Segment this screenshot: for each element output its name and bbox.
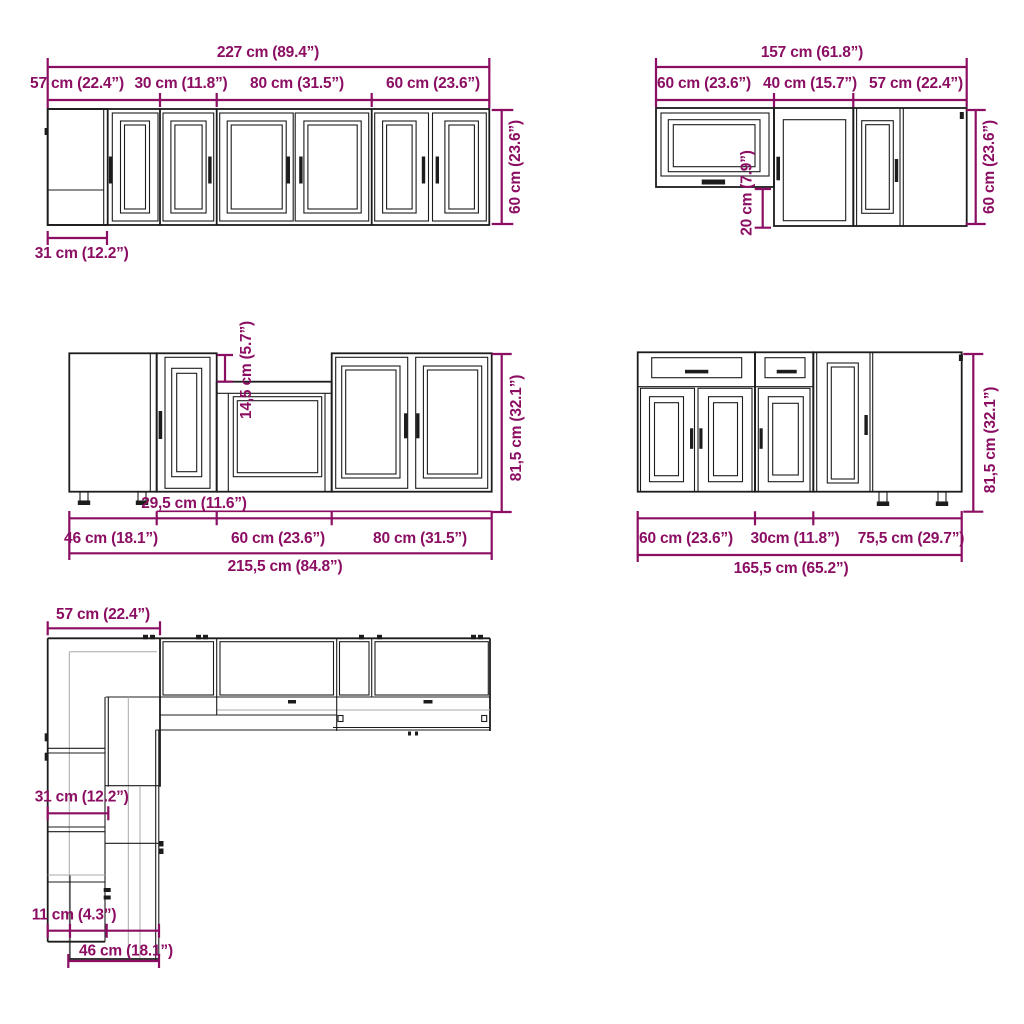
base-row-total-width-label: 215,5 cm (84.8”) — [228, 558, 343, 575]
wall-row-height-label: 60 cm (23.6”) — [507, 120, 524, 214]
wall-row-segment-label-80: 80 cm (31.5”) — [250, 75, 344, 92]
base-corner-segment-label-75: 75,5 cm (29.7”) — [858, 530, 964, 547]
wall-cabinet-row-drawing — [45, 109, 490, 225]
wall-corner-segment-label-40: 40 cm (15.7”) — [763, 75, 857, 92]
floor-plan-offset-label: 11 cm (4.3”) — [32, 907, 117, 924]
base-corner-total-width-label: 165,5 cm (65.2”) — [734, 560, 849, 577]
wall-cabinet-row-diagram: 227 cm (89.4”) 57 cm (22.4”) 30 cm (11.8… — [30, 44, 524, 262]
wall-row-total-width-label: 227 cm (89.4”) — [217, 44, 319, 61]
wall-corner-segment-label-57: 57 cm (22.4”) — [869, 75, 963, 92]
base-row-segment-label-80: 80 cm (31.5”) — [373, 530, 467, 547]
corner-base-cabinet-drawing — [638, 352, 963, 506]
floor-plan-diagram: 57 cm (22.4”) 31 cm (12.2”) 11 cm (4.3”)… — [32, 606, 490, 968]
kitchen-dimension-sheet: 227 cm (89.4”) 57 cm (22.4”) 30 cm (11.8… — [0, 0, 1024, 1024]
base-row-height-label: 81,5 cm (32.1”) — [508, 375, 525, 481]
floor-plan-top-width-label: 57 cm (22.4”) — [56, 606, 150, 623]
wall-corner-offset-label: 20 cm (7.9”) — [739, 150, 756, 236]
corner-wall-cabinet-diagram: 157 cm (61.8”) 60 cm (23.6”) 40 cm (15.7… — [656, 44, 998, 236]
wall-corner-total-width-label: 157 cm (61.8”) — [761, 44, 863, 61]
base-corner-height-label: 81,5 cm (32.1”) — [982, 387, 999, 493]
base-corner-segment-label-60: 60 cm (23.6”) — [639, 530, 733, 547]
base-row-sink-offset-label: 14,5 cm (5.7”) — [238, 321, 255, 419]
floor-plan-base-depth-label: 46 cm (18.1”) — [79, 943, 173, 960]
wall-corner-height-label: 60 cm (23.6”) — [981, 120, 998, 214]
dimension-drawing-canvas: 227 cm (89.4”) 57 cm (22.4”) 30 cm (11.8… — [0, 0, 1024, 1024]
base-row-segment-label-46: 46 cm (18.1”) — [64, 530, 158, 547]
wall-row-segment-label-30: 30 cm (11.8”) — [134, 75, 227, 92]
base-row-segment-label-60: 60 cm (23.6”) — [231, 530, 325, 547]
base-cabinet-row-diagram: 14,5 cm (5.7”) 81,5 cm (32.1”) 29,5 cm (… — [64, 321, 525, 575]
base-cabinet-row-drawing — [69, 353, 491, 505]
wall-row-segment-label-57: 57 cm (22.4”) — [30, 75, 124, 92]
base-corner-segment-label-30: 30cm (11.8”) — [751, 530, 840, 547]
wall-row-corner-depth-label: 31 cm (12.2”) — [35, 245, 129, 262]
wall-corner-segment-label-60: 60 cm (23.6”) — [657, 75, 751, 92]
corner-base-cabinet-diagram: 81,5 cm (32.1”) 60 cm (23.6”) 30cm (11.8… — [638, 352, 999, 577]
wall-row-segment-label-60: 60 cm (23.6”) — [386, 75, 480, 92]
base-row-filler-width-label: 29,5 cm (11.6”) — [141, 495, 247, 512]
corner-wall-cabinet-drawing — [656, 108, 967, 226]
floor-plan-corner-depth-label: 31 cm (12.2”) — [35, 789, 129, 806]
